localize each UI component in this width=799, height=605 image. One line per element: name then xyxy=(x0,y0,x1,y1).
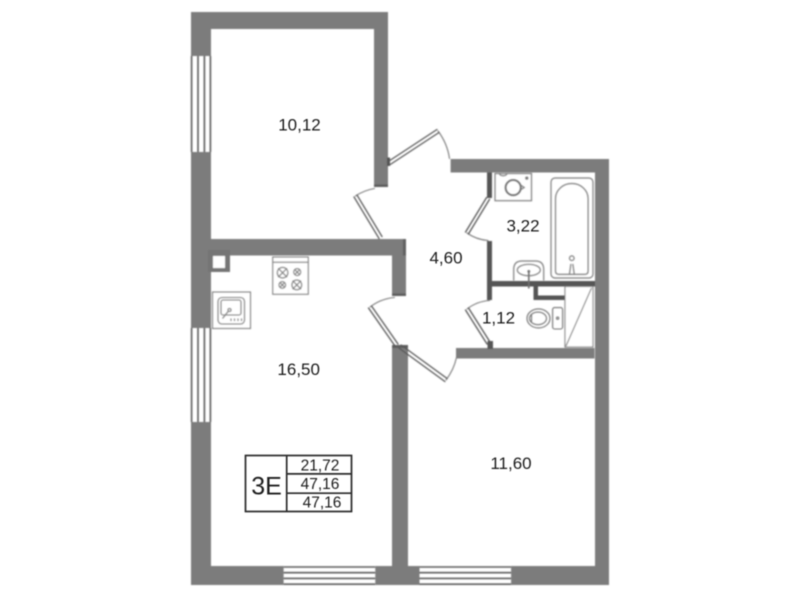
svg-text:3Е: 3Е xyxy=(251,473,282,501)
svg-text:11,60: 11,60 xyxy=(490,454,531,473)
svg-text:47,16: 47,16 xyxy=(303,495,342,512)
svg-text:4,60: 4,60 xyxy=(429,249,462,268)
svg-text:16,50: 16,50 xyxy=(277,360,320,379)
svg-text:1,12: 1,12 xyxy=(482,309,515,328)
svg-text:47,16: 47,16 xyxy=(301,476,340,493)
svg-text:21,72: 21,72 xyxy=(301,458,340,475)
svg-text:3,22: 3,22 xyxy=(506,217,539,236)
svg-text:10,12: 10,12 xyxy=(278,116,321,135)
